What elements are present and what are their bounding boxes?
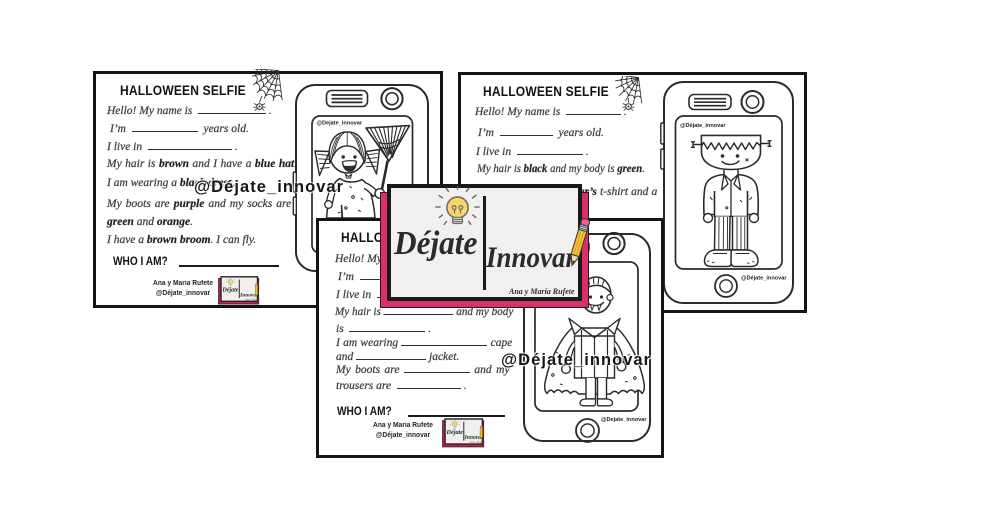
svg-text:Déjate: Déjate (221, 287, 238, 293)
svg-text:Ana y M.Rufete: Ana y M.Rufete (244, 298, 260, 301)
svg-text:@Dejate_innovar: @Dejate_innovar (601, 417, 647, 423)
svg-text:Ana y M.Rufete: Ana y M.Rufete (469, 440, 485, 444)
svg-text:Déjate: Déjate (446, 429, 464, 436)
svg-text:@Déjate_innovar: @Déjate_innovar (741, 276, 787, 282)
svg-text:@Dejate_innovar: @Dejate_innovar (317, 121, 363, 127)
svg-text:@Déjate_innovar: @Déjate_innovar (680, 123, 726, 129)
